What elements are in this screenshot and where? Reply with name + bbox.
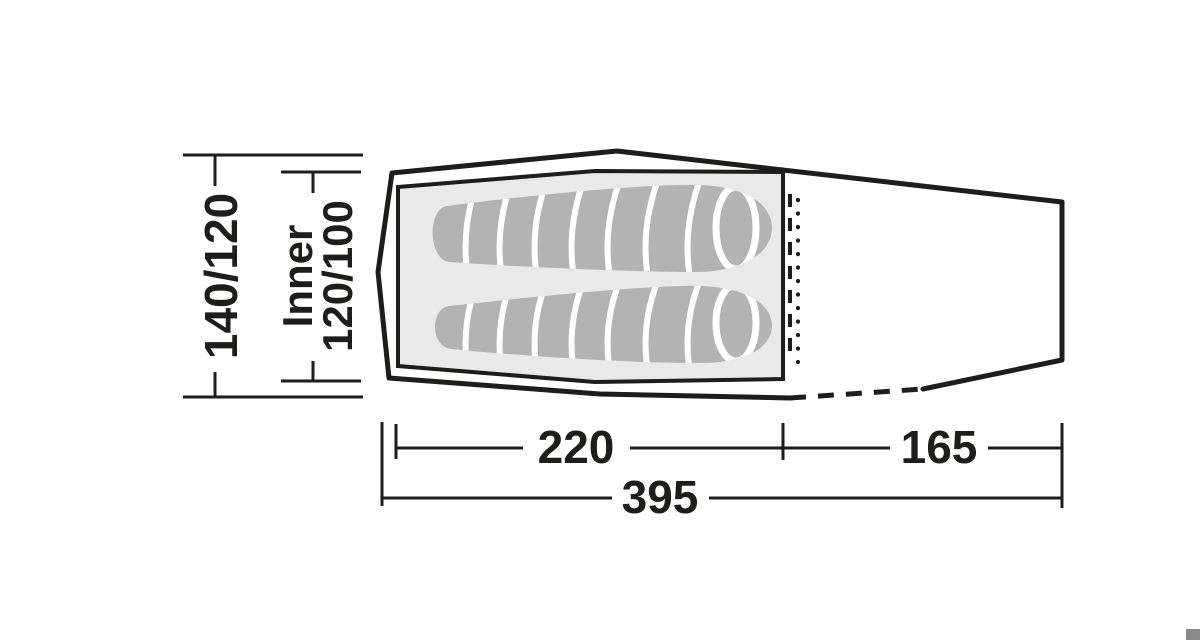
dimension-lengths: 220 165 395: [382, 421, 1062, 523]
vestibule-length-label: 165: [901, 421, 978, 473]
diagram-canvas: 140/120 Inner 120/100 220 165 395: [0, 0, 1200, 640]
dimension-inner-width: Inner 120/100: [274, 172, 361, 381]
corner-mark: [1186, 629, 1200, 640]
inner-width-label: 120/100: [314, 200, 361, 352]
outer-width-label: 140/120: [195, 193, 247, 359]
vestibule-door-dashed-line: [790, 389, 923, 398]
tent-floorplan-diagram: 140/120 Inner 120/100 220 165 395: [0, 0, 1200, 640]
inner-length-label: 220: [538, 421, 615, 473]
total-length-label: 395: [622, 471, 699, 523]
